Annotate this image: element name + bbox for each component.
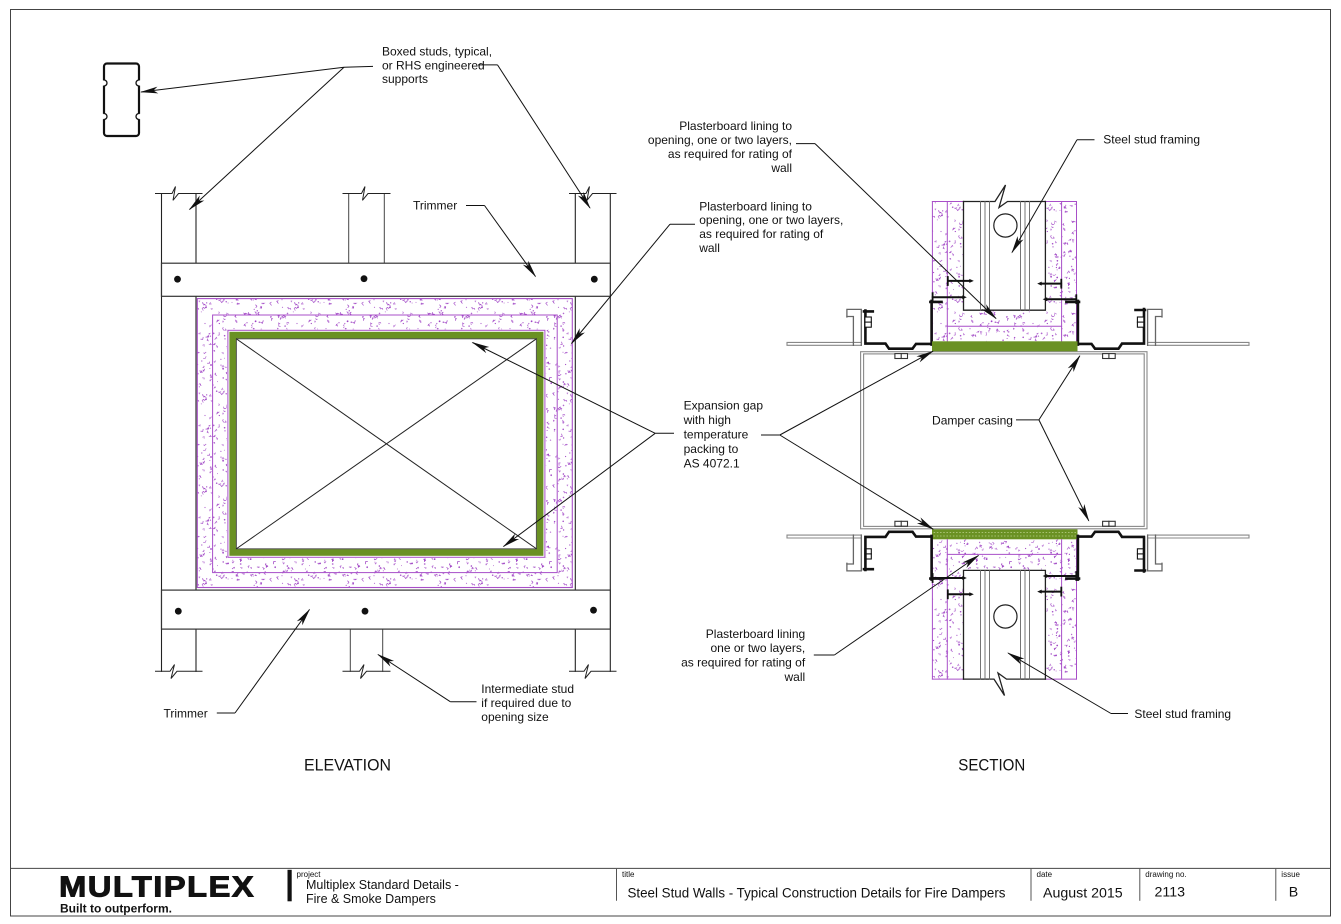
svg-text:issue: issue (1281, 870, 1300, 879)
svg-text:SECTION: SECTION (958, 756, 1025, 775)
svg-text:August 2015: August 2015 (1043, 885, 1123, 901)
svg-text:Trimmer: Trimmer (413, 199, 457, 213)
svg-text:Trimmer: Trimmer (164, 707, 208, 721)
svg-text:drawing no.: drawing no. (1145, 870, 1186, 879)
svg-text:Fire & Smoke Dampers: Fire & Smoke Dampers (306, 892, 436, 906)
svg-text:Steel stud framing: Steel stud framing (1103, 133, 1200, 147)
svg-text:title: title (622, 870, 635, 879)
svg-text:MULTIPLEX: MULTIPLEX (59, 872, 255, 904)
svg-text:Steel stud framing: Steel stud framing (1134, 707, 1231, 721)
svg-text:ELEVATION: ELEVATION (304, 756, 391, 775)
svg-text:2113: 2113 (1155, 885, 1186, 901)
svg-text:Built to outperform.: Built to outperform. (60, 902, 172, 916)
svg-text:B: B (1289, 885, 1298, 901)
svg-text:date: date (1037, 870, 1053, 879)
svg-text:Multiplex Standard Details -: Multiplex Standard Details - (306, 878, 459, 892)
svg-text:Damper casing: Damper casing (932, 413, 1013, 427)
svg-text:Steel Stud Walls - Typical Con: Steel Stud Walls - Typical Construction … (628, 885, 1006, 901)
